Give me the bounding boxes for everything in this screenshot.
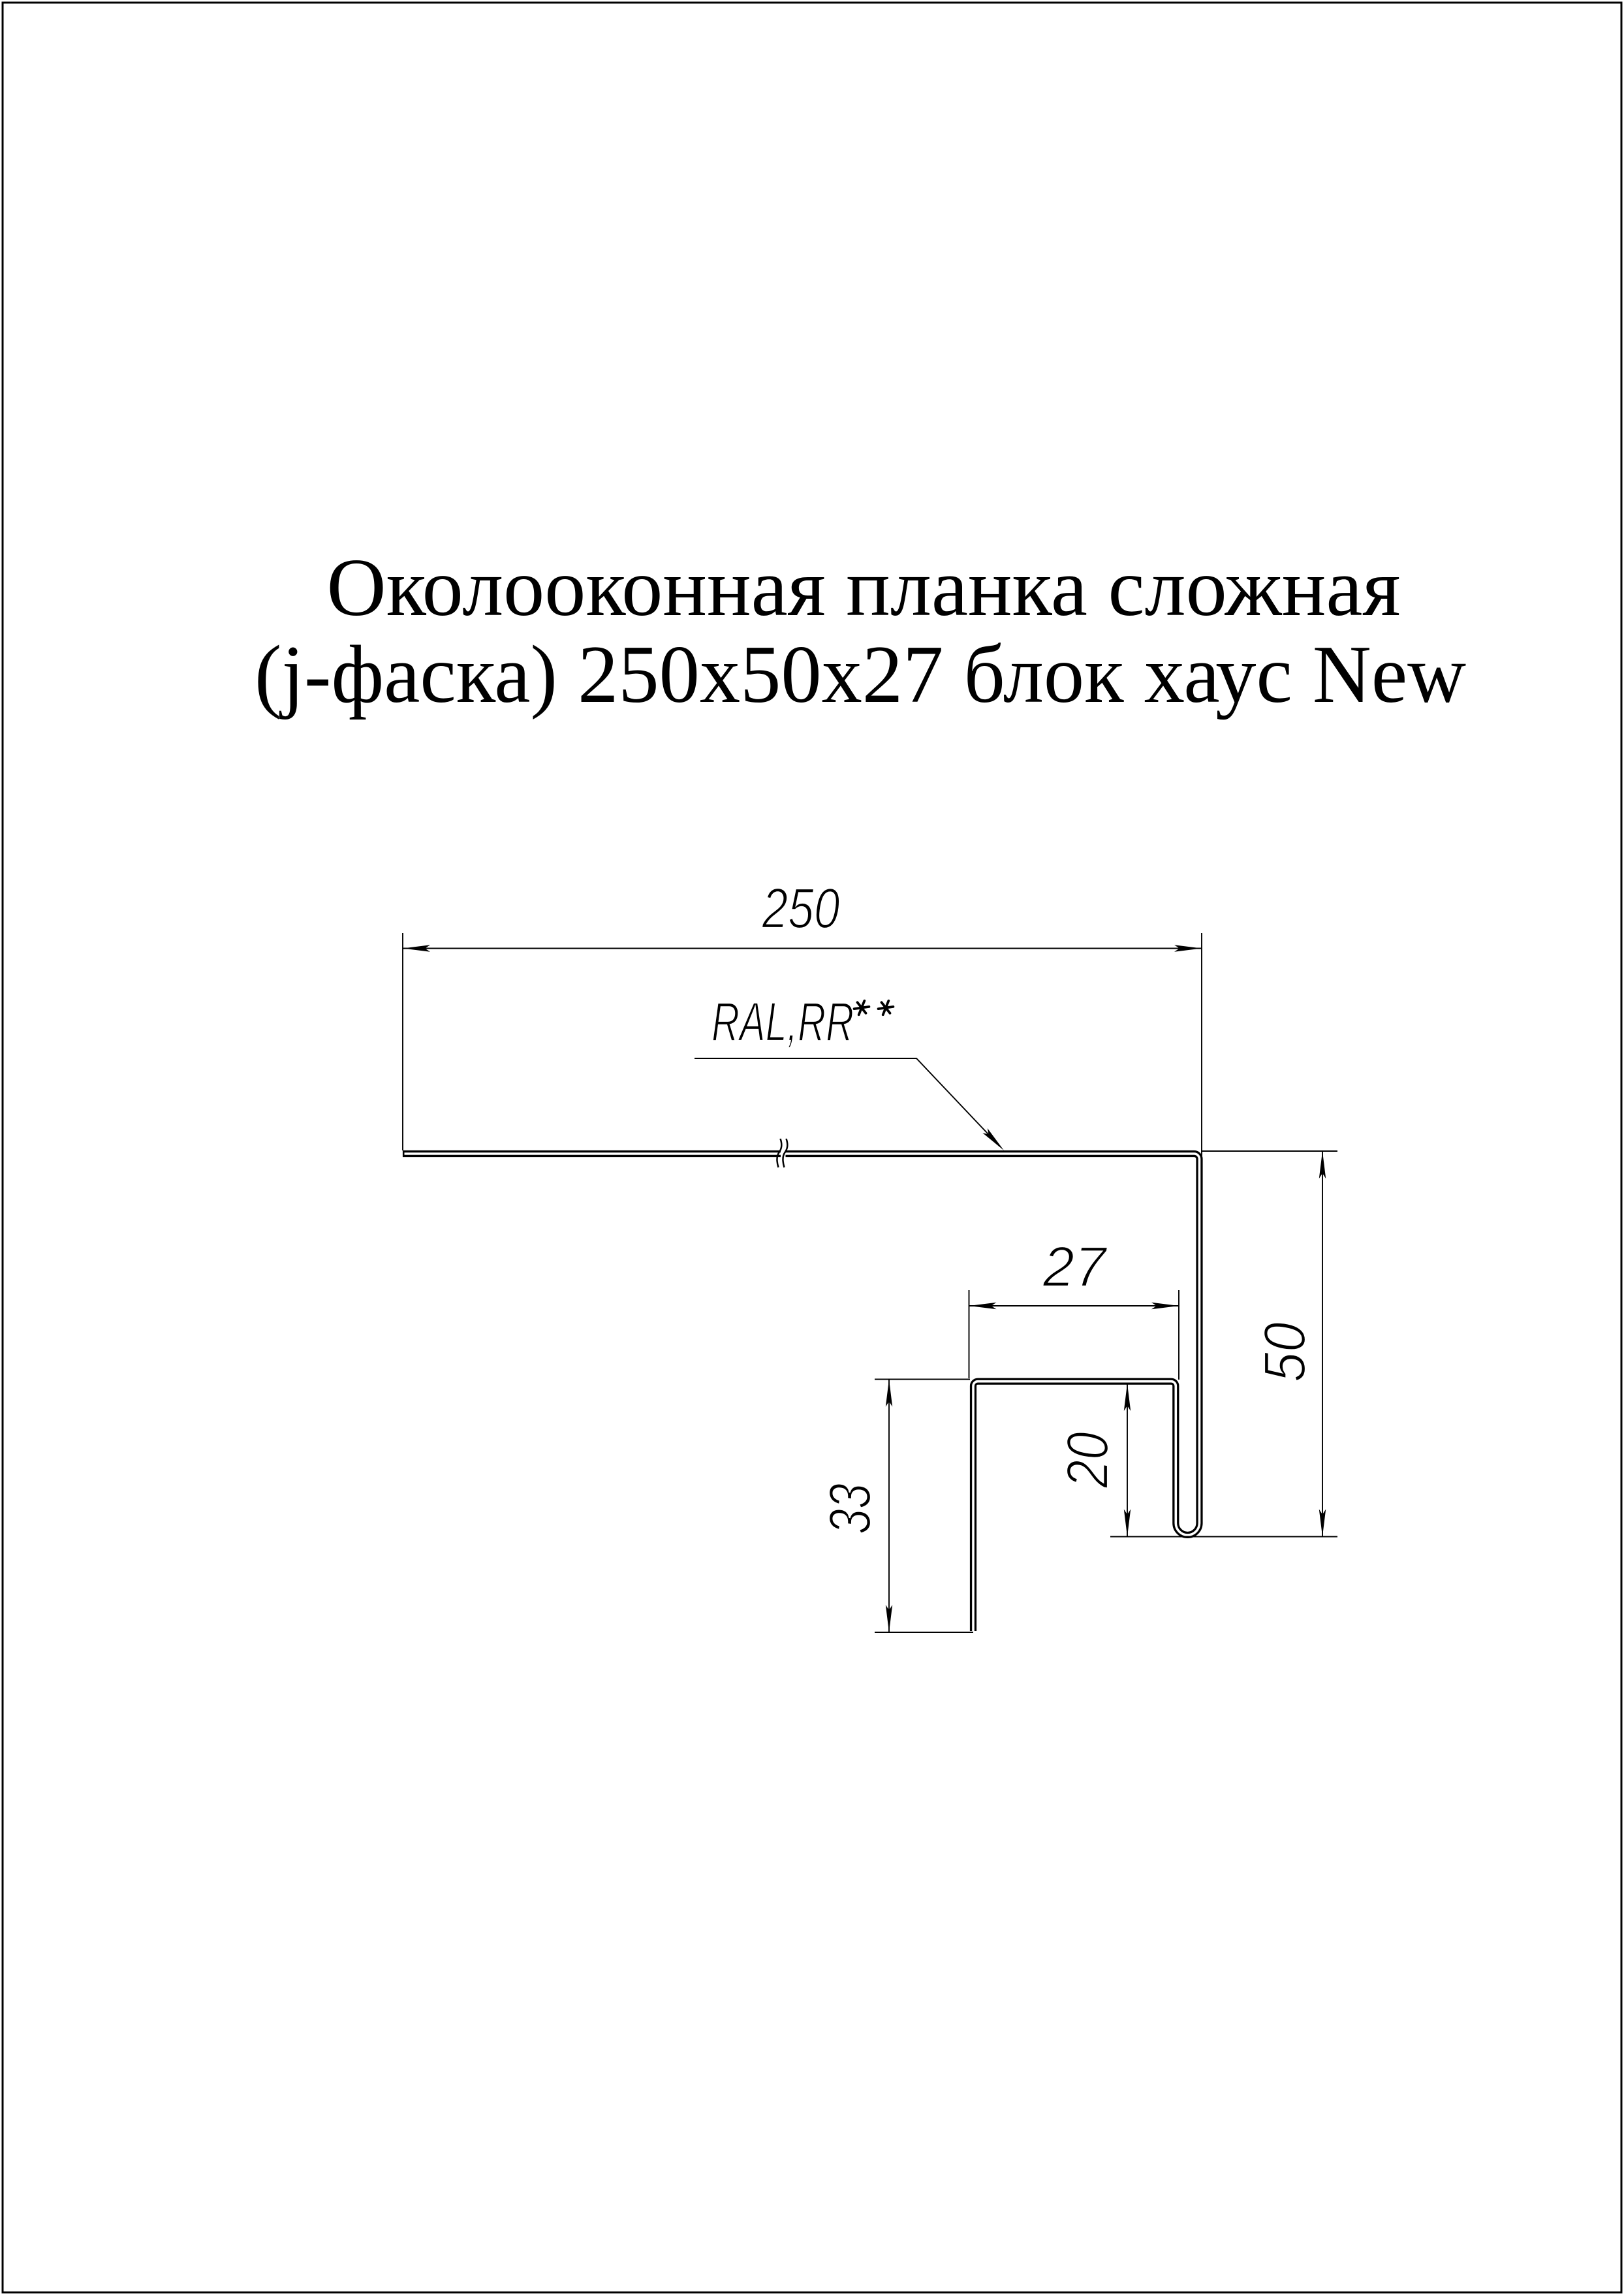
svg-text:Околооконная планка сложная: Околооконная планка сложная <box>327 543 1401 633</box>
svg-text:(j-фаска) 250x50x27 блок хаус: (j-фаска) 250x50x27 блок хаус New <box>255 629 1466 720</box>
svg-text:33: 33 <box>818 1483 883 1534</box>
svg-text:RAL,RR: RAL,RR <box>711 991 854 1053</box>
svg-text:50: 50 <box>1253 1322 1318 1382</box>
svg-text:27: 27 <box>1042 1235 1108 1299</box>
svg-text:20: 20 <box>1055 1432 1121 1489</box>
svg-text:250: 250 <box>762 877 840 940</box>
